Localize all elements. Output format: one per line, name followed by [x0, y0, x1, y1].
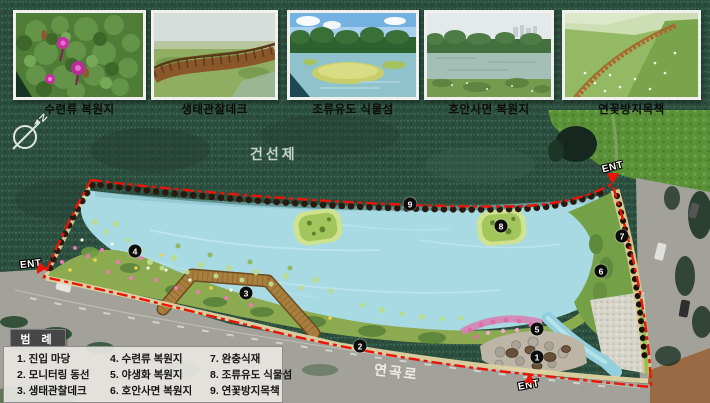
- marker-number: 8: [499, 221, 504, 231]
- photo-observation-deck: 생태관찰데크: [151, 10, 278, 117]
- map-marker-2: 2: [354, 340, 367, 353]
- legend-box: 1. 진입 마당 2. 모니터링 동선 3. 생태관찰데크 4. 수련류 복원지…: [3, 346, 283, 403]
- compass-icon: N: [9, 115, 47, 155]
- map-marker-4: 4: [129, 245, 142, 258]
- legend-item-5: 5. 야생화 복원지: [110, 367, 210, 382]
- legend-item-4: 4. 수련류 복원지: [110, 351, 210, 366]
- marker-number: 2: [358, 341, 363, 351]
- map-marker-7: 7: [616, 230, 629, 243]
- legend-item-3: 3. 생태관찰데크: [17, 383, 110, 398]
- photo-lotus-fence: 연꽃방지목책: [562, 10, 701, 117]
- photo-caption: 조류유도 식물섬: [287, 101, 419, 117]
- legend-item-7: 7. 완충식재: [210, 351, 290, 366]
- marker-number: 7: [620, 231, 625, 241]
- legend-item-2: 2. 모니터링 동선: [17, 367, 110, 382]
- marker-number: 6: [599, 266, 604, 276]
- levee-label: 건선제: [250, 144, 298, 164]
- marker-number: 9: [408, 199, 413, 209]
- photo-caption: 생태관찰데크: [151, 101, 278, 117]
- photo-caption: 연꽃방지목책: [562, 101, 701, 117]
- map-marker-1: 1: [531, 351, 544, 364]
- map-marker-8: 8: [495, 220, 508, 233]
- marker-number: 5: [535, 324, 540, 334]
- site-plan-page: N 건선제 연곡로 ENT ENT ENT 1 2 3 4 5 6 7 8 9: [0, 0, 710, 403]
- map-marker-5: 5: [531, 323, 544, 336]
- marker-number: 1: [535, 352, 540, 362]
- legend-item-9: 9. 연꽃방지목책: [210, 383, 290, 398]
- photo-caption: 호안사면 복원지: [424, 101, 554, 117]
- legend-item-6: 6. 호안사면 복원지: [110, 383, 210, 398]
- legend-item-8: 8. 조류유도 식물섬: [210, 367, 290, 382]
- photo-lake-shore: 호안사면 복원지: [424, 10, 554, 117]
- marker-number: 4: [133, 246, 138, 256]
- photo-water-lily-site: 수련류 복원지: [13, 10, 146, 117]
- photo-bird-island: 조류유도 식물섬: [287, 10, 419, 117]
- map-marker-3: 3: [240, 287, 253, 300]
- entrance-arrow-south: [524, 374, 534, 383]
- map-marker-6: 6: [595, 265, 608, 278]
- entrance-arrow-northeast: [607, 174, 617, 183]
- photo-caption: 수련류 복원지: [13, 101, 146, 117]
- legend-item-1: 1. 진입 마당: [17, 351, 110, 366]
- map-marker-9: 9: [404, 198, 417, 211]
- marker-number: 3: [244, 288, 249, 298]
